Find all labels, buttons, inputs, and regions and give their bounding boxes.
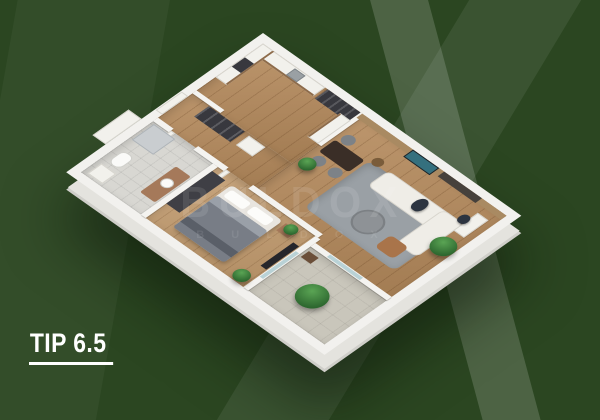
- apartment-type-label: TIP 6.5: [29, 328, 113, 365]
- presentation-canvas: BULDOX B U L D O X TIP 6.5: [0, 0, 600, 420]
